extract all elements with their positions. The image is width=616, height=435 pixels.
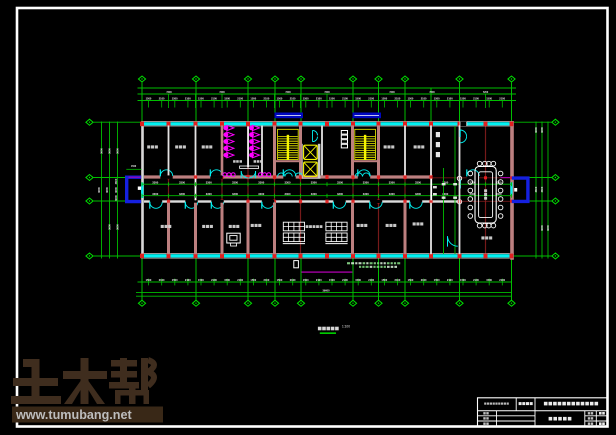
svg-text:3300: 3300 bbox=[258, 180, 264, 184]
svg-text:7200: 7200 bbox=[429, 91, 435, 94]
svg-text:3300: 3300 bbox=[285, 192, 291, 196]
svg-text:1500: 1500 bbox=[355, 97, 361, 101]
svg-text:2100: 2100 bbox=[368, 278, 374, 282]
svg-text:2100: 2100 bbox=[211, 97, 217, 101]
svg-text:2100: 2100 bbox=[159, 278, 165, 282]
svg-text:2100: 2100 bbox=[264, 97, 270, 101]
svg-text:1500: 1500 bbox=[277, 97, 283, 101]
svg-text:3300: 3300 bbox=[285, 180, 291, 184]
svg-text:2100: 2100 bbox=[395, 97, 401, 101]
svg-text:2100: 2100 bbox=[499, 278, 505, 282]
svg-text:3300: 3300 bbox=[232, 180, 238, 184]
svg-text:2100: 2100 bbox=[395, 278, 401, 282]
svg-text:3600: 3600 bbox=[534, 127, 538, 133]
svg-text:1500: 1500 bbox=[434, 97, 440, 101]
svg-text:1500: 1500 bbox=[131, 166, 137, 168]
svg-text:1500: 1500 bbox=[224, 97, 230, 101]
svg-text:1500: 1500 bbox=[198, 97, 204, 101]
svg-text:3600: 3600 bbox=[540, 127, 544, 133]
svg-text:1500: 1500 bbox=[381, 97, 387, 101]
svg-text:2100: 2100 bbox=[499, 97, 505, 101]
svg-text:39600: 39600 bbox=[323, 289, 331, 292]
svg-text:3300: 3300 bbox=[389, 192, 395, 196]
svg-text:2100: 2100 bbox=[473, 97, 479, 101]
svg-text:7200: 7200 bbox=[166, 91, 172, 94]
svg-text:3300: 3300 bbox=[206, 192, 212, 196]
svg-text:3600: 3600 bbox=[546, 225, 550, 231]
svg-text:2100: 2100 bbox=[342, 278, 348, 282]
svg-text:2100: 2100 bbox=[237, 278, 243, 282]
svg-text:3600: 3600 bbox=[540, 186, 544, 192]
svg-text:3300: 3300 bbox=[258, 192, 264, 196]
svg-text:7200: 7200 bbox=[324, 91, 330, 94]
svg-text:1500: 1500 bbox=[250, 97, 256, 101]
svg-text:3300: 3300 bbox=[232, 192, 238, 196]
svg-text:1500: 1500 bbox=[277, 278, 283, 282]
svg-text:1500: 1500 bbox=[460, 97, 466, 101]
svg-text:3600: 3600 bbox=[108, 224, 112, 230]
svg-text:3300: 3300 bbox=[337, 192, 343, 196]
svg-text:1500: 1500 bbox=[250, 278, 256, 282]
svg-text:1500: 1500 bbox=[486, 97, 492, 101]
svg-text:3300: 3300 bbox=[415, 180, 421, 184]
svg-text:3300: 3300 bbox=[311, 180, 317, 184]
svg-text:1500: 1500 bbox=[172, 97, 178, 101]
svg-text:1500: 1500 bbox=[408, 97, 414, 101]
svg-text:3600: 3600 bbox=[114, 178, 118, 184]
svg-text:2100: 2100 bbox=[237, 97, 243, 101]
svg-text:2100: 2100 bbox=[473, 278, 479, 282]
svg-text:2100: 2100 bbox=[447, 278, 453, 282]
svg-text:1500: 1500 bbox=[146, 278, 152, 282]
svg-text:3300: 3300 bbox=[363, 192, 369, 196]
svg-text:1500: 1500 bbox=[172, 278, 178, 282]
svg-text:3600: 3600 bbox=[108, 148, 112, 154]
svg-text:3300: 3300 bbox=[415, 192, 421, 196]
svg-text:7200: 7200 bbox=[483, 91, 489, 94]
svg-text:1:100: 1:100 bbox=[342, 325, 350, 329]
svg-text:2100: 2100 bbox=[185, 97, 191, 101]
svg-text:2100: 2100 bbox=[447, 97, 453, 101]
svg-text:3300: 3300 bbox=[363, 180, 369, 184]
svg-text:2100: 2100 bbox=[316, 278, 322, 282]
svg-text:3300: 3300 bbox=[179, 192, 185, 196]
svg-text:3300: 3300 bbox=[337, 180, 343, 184]
svg-text:1500: 1500 bbox=[329, 97, 335, 101]
svg-text:3600: 3600 bbox=[114, 195, 118, 201]
svg-text:2100: 2100 bbox=[368, 97, 374, 101]
svg-text:3600: 3600 bbox=[105, 187, 109, 193]
svg-text:3300: 3300 bbox=[152, 180, 158, 184]
svg-text:3600: 3600 bbox=[116, 148, 120, 154]
svg-text:7200: 7200 bbox=[389, 91, 395, 94]
svg-text:7200: 7200 bbox=[219, 91, 225, 94]
svg-text:2100: 2100 bbox=[264, 278, 270, 282]
svg-text:3600: 3600 bbox=[116, 224, 120, 230]
svg-text:2100: 2100 bbox=[159, 97, 165, 101]
svg-text:1500: 1500 bbox=[355, 278, 361, 282]
svg-text:3300: 3300 bbox=[179, 180, 185, 184]
svg-text:3600: 3600 bbox=[97, 187, 101, 193]
svg-text:2100: 2100 bbox=[185, 278, 191, 282]
svg-text:1500: 1500 bbox=[303, 278, 309, 282]
svg-text:3300: 3300 bbox=[152, 192, 158, 196]
svg-text:3600: 3600 bbox=[114, 187, 118, 193]
svg-text:1500: 1500 bbox=[460, 278, 466, 282]
svg-text:3300: 3300 bbox=[389, 180, 395, 184]
svg-text:2100: 2100 bbox=[290, 278, 296, 282]
svg-text:2100: 2100 bbox=[421, 278, 427, 282]
svg-text:1500: 1500 bbox=[198, 278, 204, 282]
svg-text:1500: 1500 bbox=[486, 278, 492, 282]
svg-text:3300: 3300 bbox=[311, 192, 317, 196]
svg-text:www.tumubang.net: www.tumubang.net bbox=[15, 408, 132, 422]
svg-text:1500: 1500 bbox=[408, 278, 414, 282]
svg-text:1500: 1500 bbox=[224, 278, 230, 282]
svg-text:3600: 3600 bbox=[534, 186, 538, 192]
svg-text:2100: 2100 bbox=[421, 97, 427, 101]
svg-text:2100: 2100 bbox=[316, 97, 322, 101]
svg-text:1500: 1500 bbox=[303, 97, 309, 101]
svg-text:2100: 2100 bbox=[290, 97, 296, 101]
svg-text:2100: 2100 bbox=[211, 278, 217, 282]
svg-text:3600: 3600 bbox=[100, 148, 104, 154]
svg-text:2100: 2100 bbox=[342, 97, 348, 101]
svg-text:3600: 3600 bbox=[540, 225, 544, 231]
svg-text:7200: 7200 bbox=[285, 91, 291, 94]
svg-text:1500: 1500 bbox=[329, 278, 335, 282]
svg-text:1500: 1500 bbox=[434, 278, 440, 282]
svg-text:3300: 3300 bbox=[206, 180, 212, 184]
svg-text:1500: 1500 bbox=[381, 278, 387, 282]
svg-text:1500: 1500 bbox=[146, 97, 152, 101]
